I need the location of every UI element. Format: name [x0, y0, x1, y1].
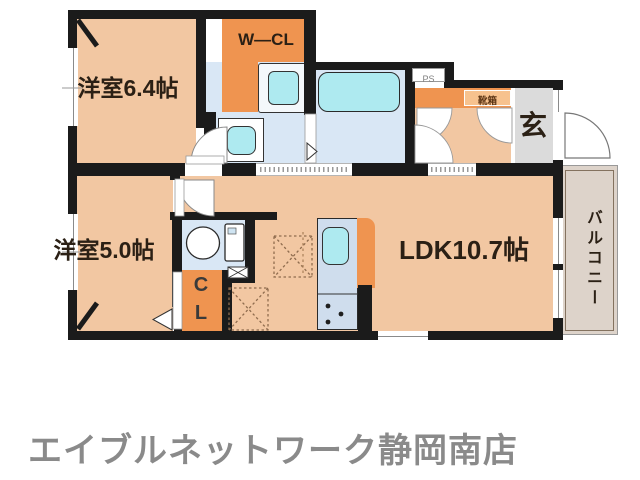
closet-label: C L: [186, 271, 216, 327]
wall: [222, 163, 256, 176]
window-pane-line: [378, 336, 428, 337]
vanity-sink-bowl: [227, 126, 256, 155]
wall: [204, 112, 216, 165]
toilet-floor: [182, 220, 245, 275]
kitchen-cabinet: [357, 218, 375, 288]
wall: [68, 10, 314, 19]
shoebox-label: 靴箱: [478, 96, 497, 107]
wall: [196, 10, 206, 128]
ps-box: PS: [412, 68, 445, 82]
wall: [358, 285, 372, 331]
wall: [68, 331, 563, 340]
wall: [352, 163, 428, 176]
ps-label: PS: [422, 74, 434, 84]
wall: [68, 163, 185, 176]
genkan-label: 玄: [513, 110, 553, 142]
wall: [476, 163, 563, 176]
wall: [170, 176, 180, 180]
door-opening: [185, 163, 222, 176]
floorplan-canvas: 洋室6.4帖 洋室5.0帖 LDK10.7帖 W—CL C L 玄 バルコニー …: [0, 0, 640, 480]
wall: [170, 212, 277, 220]
wall: [174, 307, 182, 333]
window-slit: [553, 90, 563, 112]
window: [378, 331, 428, 340]
room-6-4-label: 洋室6.4帖: [66, 75, 190, 101]
wall: [444, 80, 563, 88]
window-pane-line: [558, 90, 559, 112]
wall: [222, 270, 232, 332]
wall: [172, 214, 182, 307]
wall: [228, 275, 255, 283]
bathtub: [318, 72, 400, 112]
wall: [245, 220, 255, 283]
entrance-door-opening: [553, 112, 563, 160]
window-mullion: [553, 264, 563, 270]
sliding-door: [428, 163, 476, 176]
agency-name: エイブルネットワーク静岡南店: [28, 423, 628, 472]
kitchen-sink: [322, 227, 349, 265]
wcl-label: W—CL: [226, 30, 306, 50]
shoebox-label-box: 靴箱: [464, 90, 511, 106]
entrance-door-swing: [565, 113, 610, 158]
washing-machine-pan-basin: [268, 71, 299, 105]
ldk-label: LDK10.7帖: [386, 236, 542, 266]
room-5-0-label: 洋室5.0帖: [44, 237, 164, 263]
sliding-door: [256, 163, 352, 176]
wcl-floor-column: [222, 62, 258, 112]
balcony-label: バルコニー: [577, 184, 601, 334]
